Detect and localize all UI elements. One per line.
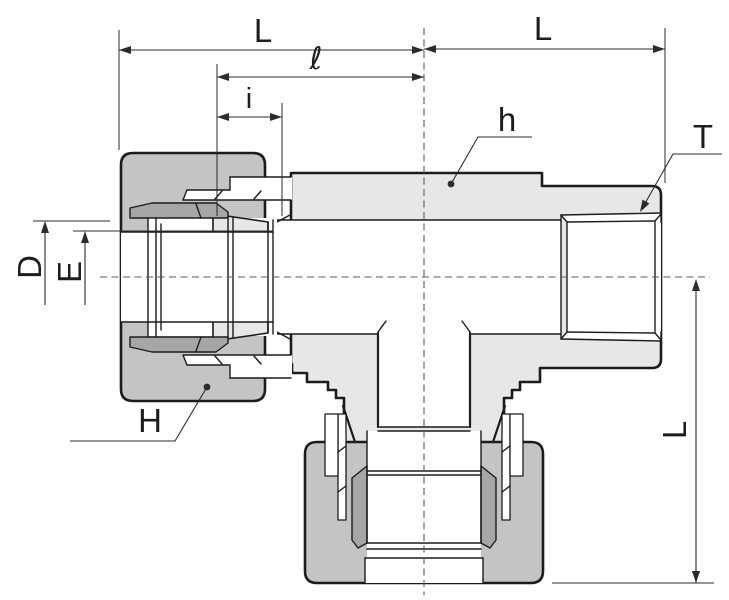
ferrule-lower <box>130 337 228 352</box>
leader-h-dot <box>448 181 455 188</box>
dim-label-L-right: L <box>534 10 552 47</box>
dim-label-D: D <box>11 255 48 279</box>
label-h: h <box>498 101 516 138</box>
ferrule-bottom-right <box>481 466 496 548</box>
dim-label-L-branch: L <box>656 421 693 439</box>
fitting-diagram: L L ℓ i D E L h <box>0 0 729 600</box>
ferrule-upper <box>130 203 228 218</box>
dim-label-E: E <box>51 261 88 283</box>
fitting-drawing-page: L L ℓ i D E L h <box>0 0 729 600</box>
dim-label-L-left: L <box>254 12 272 49</box>
label-T: T <box>693 118 713 155</box>
dim-label-i: i <box>246 83 252 115</box>
label-H: H <box>138 402 162 439</box>
ferrule-bottom-left <box>352 466 367 548</box>
dim-label-ell: ℓ <box>309 41 323 77</box>
leader-H-dot <box>204 384 211 391</box>
